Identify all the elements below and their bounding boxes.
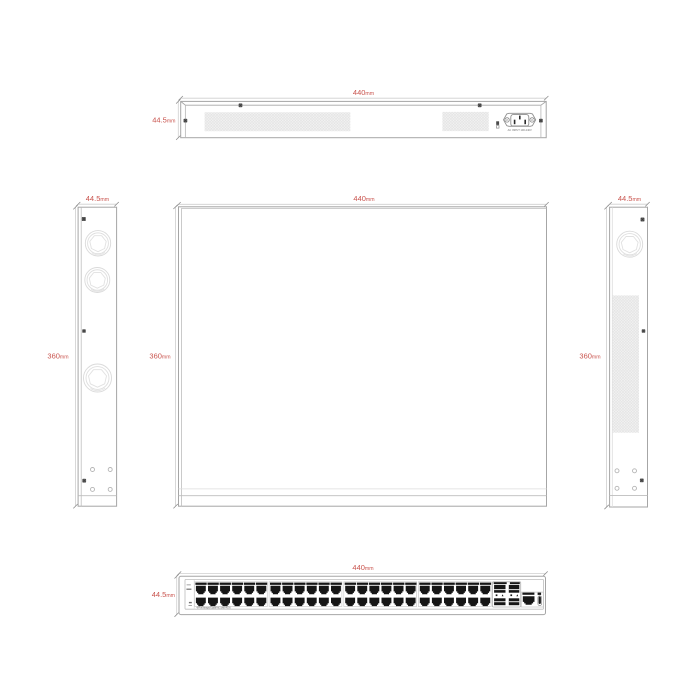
svg-text:48-Port Managed Gigabit PoE Sw: 48-Port Managed Gigabit PoE Switch 400W <box>196 607 231 610</box>
svg-text:AC INPUT 100-240V: AC INPUT 100-240V <box>508 128 532 132</box>
